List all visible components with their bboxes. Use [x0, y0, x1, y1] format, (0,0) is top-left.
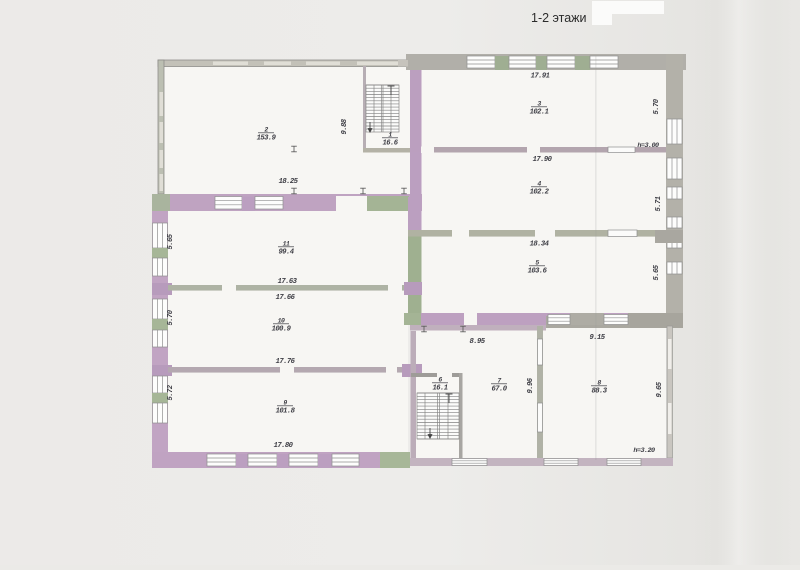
svg-text:103.6: 103.6 — [528, 268, 548, 276]
svg-text:9.88: 9.88 — [341, 118, 349, 134]
svg-text:9.15: 9.15 — [589, 334, 605, 342]
svg-text:17.63: 17.63 — [278, 278, 298, 286]
svg-text:18.25: 18.25 — [279, 178, 299, 186]
svg-text:17.90: 17.90 — [533, 156, 553, 164]
svg-text:102.2: 102.2 — [530, 189, 550, 197]
svg-text:h=3.00: h=3.00 — [637, 142, 659, 150]
svg-text:9.65: 9.65 — [656, 381, 664, 397]
svg-text:1-2 этажи: 1-2 этажи — [531, 11, 587, 25]
svg-text:5.72: 5.72 — [167, 384, 175, 400]
svg-text:9.96: 9.96 — [527, 377, 535, 393]
svg-text:5.71: 5.71 — [655, 196, 663, 211]
svg-text:5.70: 5.70 — [653, 98, 661, 114]
svg-text:102.1: 102.1 — [530, 109, 549, 117]
svg-text:h=3.20: h=3.20 — [633, 447, 655, 455]
svg-text:5.70: 5.70 — [167, 309, 175, 325]
svg-text:99.4: 99.4 — [278, 249, 294, 257]
svg-text:153.9: 153.9 — [257, 135, 277, 143]
svg-text:88.3: 88.3 — [591, 388, 607, 396]
svg-text:101.8: 101.8 — [276, 408, 296, 416]
svg-text:16.6: 16.6 — [382, 140, 398, 148]
svg-text:67.0: 67.0 — [491, 386, 507, 394]
svg-text:17.80: 17.80 — [274, 442, 294, 450]
svg-text:16.1: 16.1 — [432, 385, 447, 393]
svg-text:5.65: 5.65 — [167, 233, 175, 249]
svg-text:17.76: 17.76 — [276, 358, 296, 366]
svg-text:17.91: 17.91 — [531, 73, 550, 81]
svg-text:5.65: 5.65 — [653, 264, 661, 280]
svg-text:17.66: 17.66 — [276, 294, 296, 302]
svg-text:8.95: 8.95 — [469, 338, 485, 346]
svg-text:100.9: 100.9 — [272, 326, 292, 334]
svg-text:18.34: 18.34 — [530, 241, 550, 249]
